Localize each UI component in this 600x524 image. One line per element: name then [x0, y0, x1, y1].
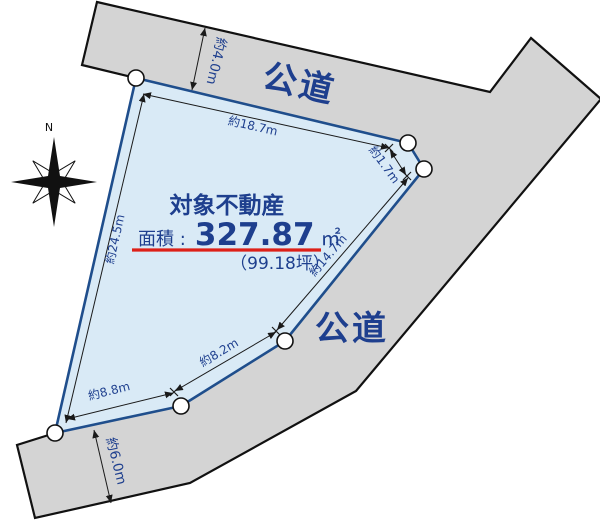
- property-title: 対象不動産: [170, 192, 285, 219]
- compass-star-cardinal: [11, 137, 97, 227]
- vertex-marker: [416, 161, 432, 177]
- compass-north-label: N: [45, 121, 53, 134]
- area-tsubo: （99.18坪）: [230, 254, 330, 274]
- land-plot-diagram: 約18.7m 約1.7m 約14.7m 約8.2m 約8.8m 約24.5m 約…: [0, 0, 600, 524]
- area-value: 327.87: [195, 217, 315, 253]
- compass-rose: N: [11, 121, 97, 227]
- vertex-marker: [400, 135, 416, 151]
- area-label: 面積 :: [138, 229, 186, 250]
- road-label-side: 公道: [315, 309, 389, 349]
- area-unit: ㎡: [321, 226, 341, 250]
- vertex-marker: [173, 398, 189, 414]
- vertex-marker: [128, 70, 144, 86]
- vertex-marker: [47, 425, 63, 441]
- vertex-marker: [277, 333, 293, 349]
